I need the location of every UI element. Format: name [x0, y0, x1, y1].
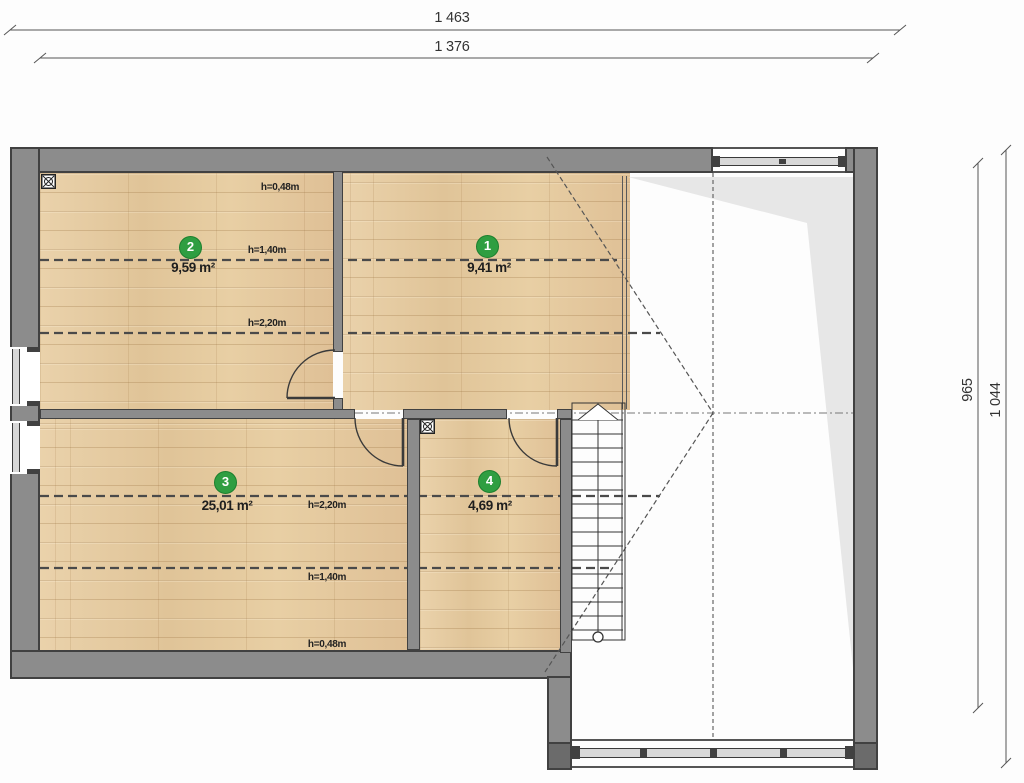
dimension-top-outer: 1 463 — [402, 10, 502, 26]
height-label-upper-048: h=0,48m — [245, 182, 315, 193]
dimension-lines — [4, 25, 1011, 768]
room-area-3: 25,01 m² — [182, 498, 272, 513]
dimension-top-inner: 1 376 — [402, 39, 502, 55]
room-area-1: 9,41 m² — [444, 260, 534, 275]
door-room2 — [287, 350, 335, 398]
vent-grille-icon — [420, 419, 435, 434]
room-area-4: 4,69 m² — [445, 498, 535, 513]
roof-hip-lines — [545, 157, 713, 672]
door-room3 — [355, 418, 403, 466]
door-room4 — [509, 418, 557, 466]
stairs-newel-post — [593, 632, 603, 642]
dimension-right-outer: 1 044 — [988, 350, 1004, 450]
height-label-lower-220: h=2,20m — [292, 500, 362, 511]
dimension-right-inner: 965 — [960, 340, 976, 440]
room-badge-3: 3 — [214, 471, 237, 494]
room-badge-4: 4 — [478, 470, 501, 493]
vent-grille-icon — [41, 174, 56, 189]
height-label-upper-140: h=1,40m — [232, 245, 302, 256]
height-label-lower-140: h=1,40m — [292, 572, 362, 583]
height-label-lower-048: h=0,48m — [292, 639, 362, 650]
floor-plan: 2 9,59 m² 1 9,41 m² 3 25,01 m² 4 4,69 m²… — [0, 0, 1024, 783]
room-badge-2: 2 — [179, 236, 202, 259]
room-area-2: 9,59 m² — [148, 260, 238, 275]
room-badge-1: 1 — [476, 235, 499, 258]
height-label-upper-220: h=2,20m — [232, 318, 302, 329]
staircase — [572, 403, 625, 642]
plan-overlay — [0, 0, 1024, 783]
